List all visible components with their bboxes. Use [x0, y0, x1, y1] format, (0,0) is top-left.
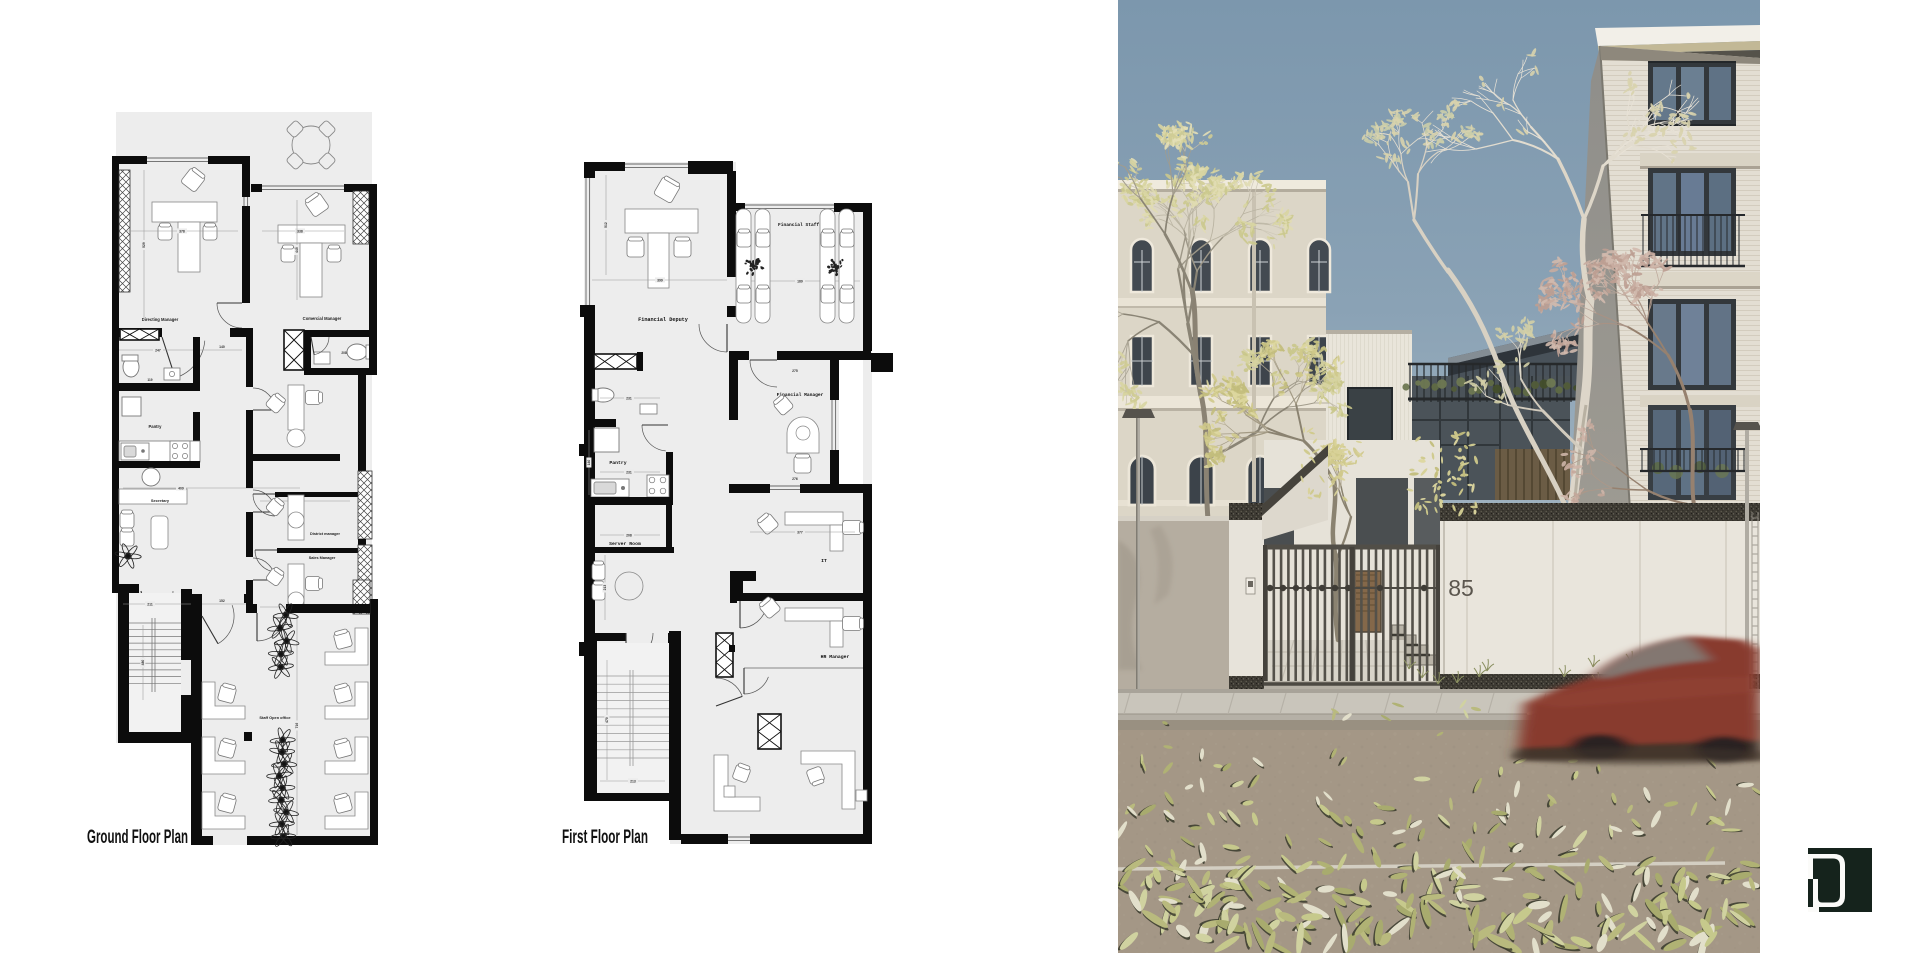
svg-text:276: 276 [792, 477, 798, 481]
svg-text:IT: IT [821, 558, 827, 564]
svg-text:First Floor Plan: First Floor Plan [562, 827, 648, 848]
svg-text:512: 512 [604, 222, 608, 228]
svg-text:Comercial Manager: Comercial Manager [303, 316, 342, 321]
svg-text:399: 399 [657, 278, 663, 282]
svg-text:529: 529 [142, 242, 146, 248]
svg-text:Financial Deputy: Financial Deputy [638, 317, 689, 323]
svg-text:378: 378 [179, 229, 185, 233]
svg-text:Pantry: Pantry [609, 460, 626, 466]
svg-text:Pantry: Pantry [148, 424, 162, 429]
svg-text:140: 140 [219, 345, 225, 349]
svg-text:Directing Manager: Directing Manager [142, 317, 179, 322]
svg-text:Secretary: Secretary [151, 498, 170, 503]
svg-text:Staff Open office: Staff Open office [259, 715, 291, 720]
svg-text:231: 231 [626, 470, 632, 474]
svg-text:480: 480 [141, 660, 145, 666]
svg-text:213: 213 [603, 585, 607, 591]
svg-text:Sales Manager: Sales Manager [309, 556, 336, 560]
svg-text:152: 152 [219, 599, 225, 603]
svg-text:HR Manager: HR Manager [821, 654, 850, 660]
svg-text:470: 470 [605, 717, 609, 723]
svg-text:208: 208 [341, 351, 347, 355]
svg-text:275: 275 [792, 369, 798, 373]
svg-text:208: 208 [626, 533, 632, 537]
svg-text:338: 338 [297, 229, 303, 233]
svg-text:409: 409 [178, 486, 184, 490]
svg-text:Financial Staffs: Financial Staffs [778, 222, 822, 228]
svg-text:716: 716 [295, 723, 299, 729]
svg-text:445: 445 [295, 247, 299, 253]
svg-text:85: 85 [1448, 575, 1474, 601]
svg-text:Server Room: Server Room [609, 541, 641, 547]
svg-text:Ground Floor Plan: Ground Floor Plan [87, 827, 188, 848]
svg-text:District manager: District manager [310, 532, 340, 536]
svg-text:140: 140 [587, 460, 591, 466]
svg-text:213: 213 [630, 779, 636, 783]
svg-text:119: 119 [147, 378, 152, 382]
svg-text:231: 231 [626, 396, 632, 400]
svg-text:377: 377 [797, 530, 803, 534]
svg-text:247: 247 [155, 348, 161, 352]
svg-text:189: 189 [797, 279, 803, 283]
svg-text:211: 211 [147, 602, 153, 606]
